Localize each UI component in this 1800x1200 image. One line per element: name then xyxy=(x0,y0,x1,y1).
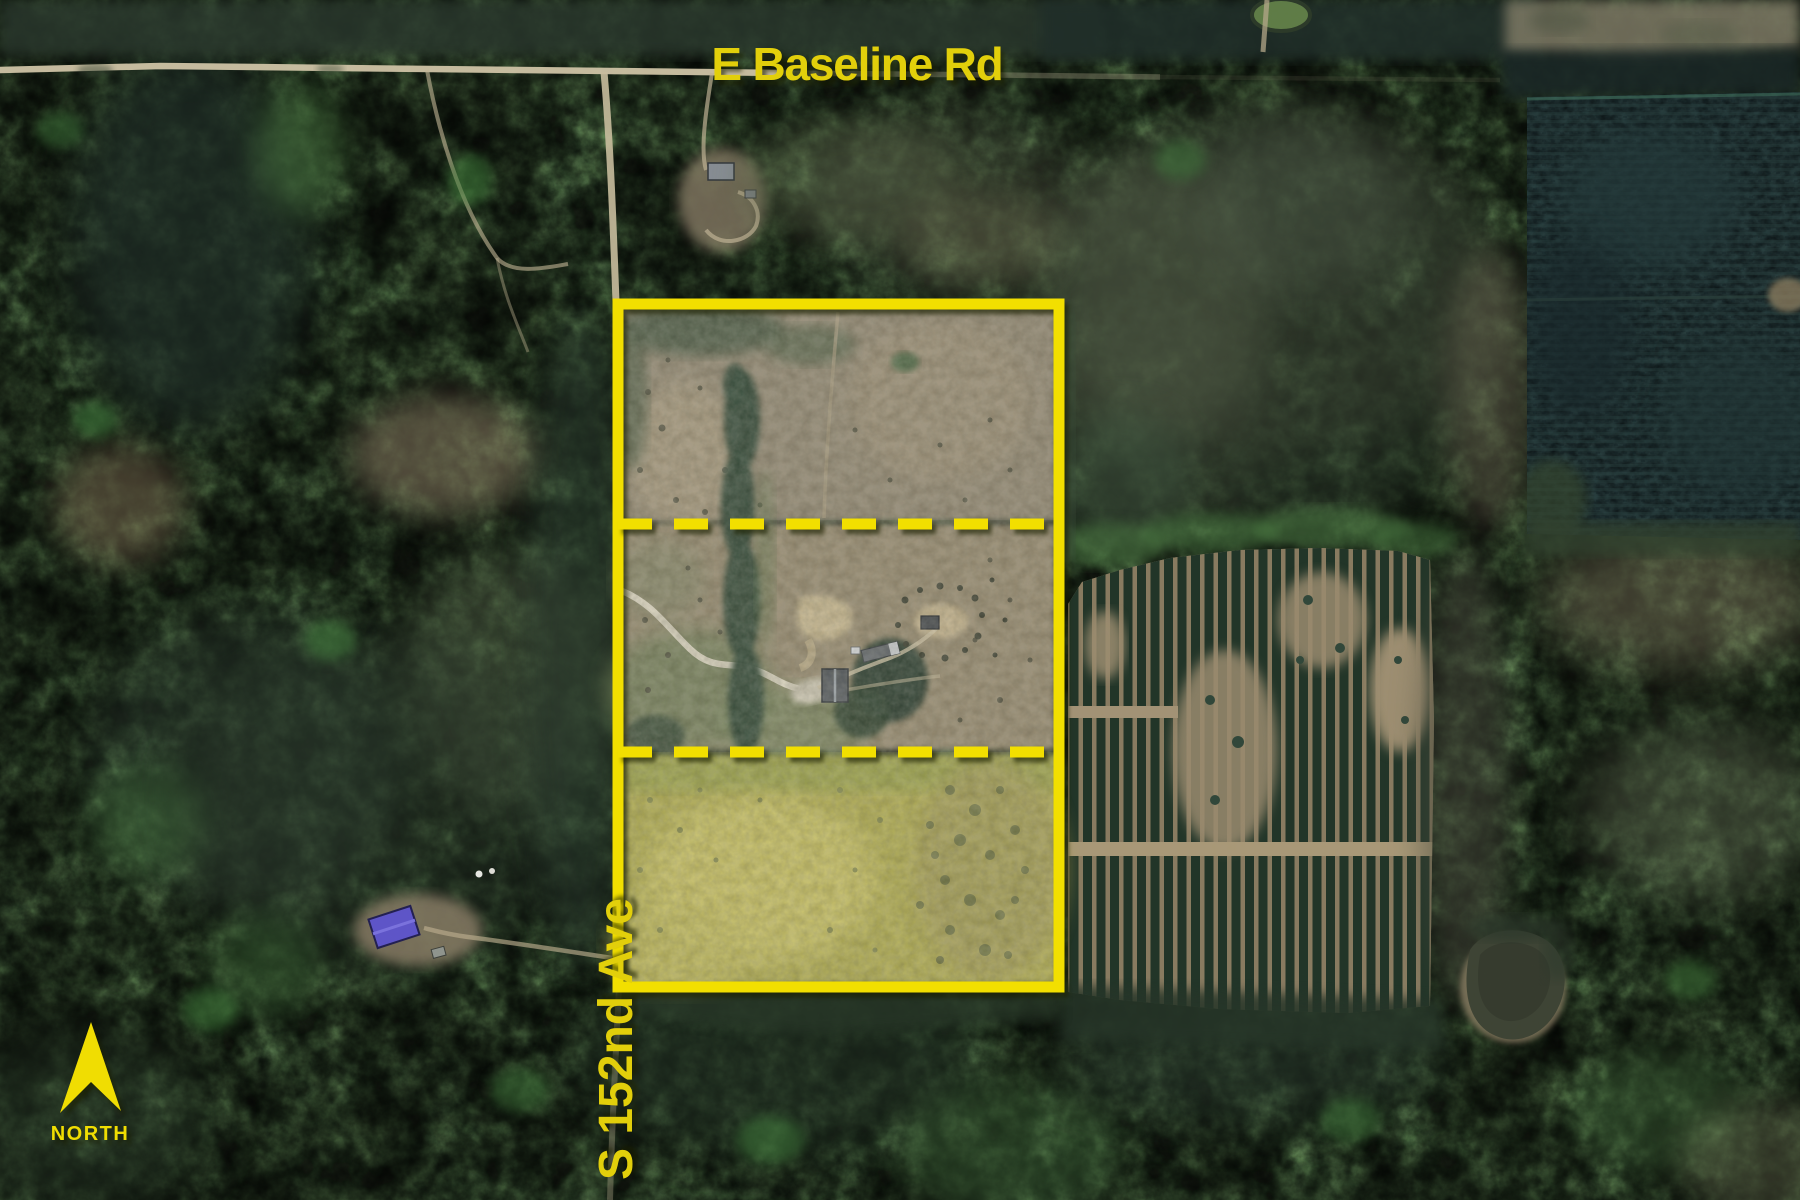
svg-text:S 152nd Ave: S 152nd Ave xyxy=(590,898,643,1180)
svg-text:E Baseline Rd: E Baseline Rd xyxy=(711,38,1002,90)
svg-text:NORTH: NORTH xyxy=(51,1123,130,1145)
